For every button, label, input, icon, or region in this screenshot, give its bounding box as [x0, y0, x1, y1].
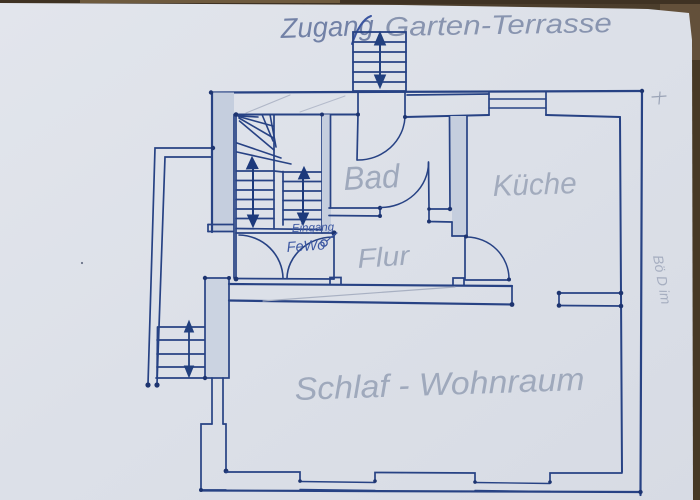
svg-text:Garten-Terrasse: Garten-Terrasse [385, 8, 612, 42]
svg-text:Küche: Küche [492, 167, 577, 203]
svg-text:Bad: Bad [342, 157, 401, 197]
svg-text:Eingang: Eingang [292, 221, 335, 234]
svg-text:FeWo: FeWo [286, 237, 326, 256]
svg-text:Flur: Flur [356, 240, 411, 274]
